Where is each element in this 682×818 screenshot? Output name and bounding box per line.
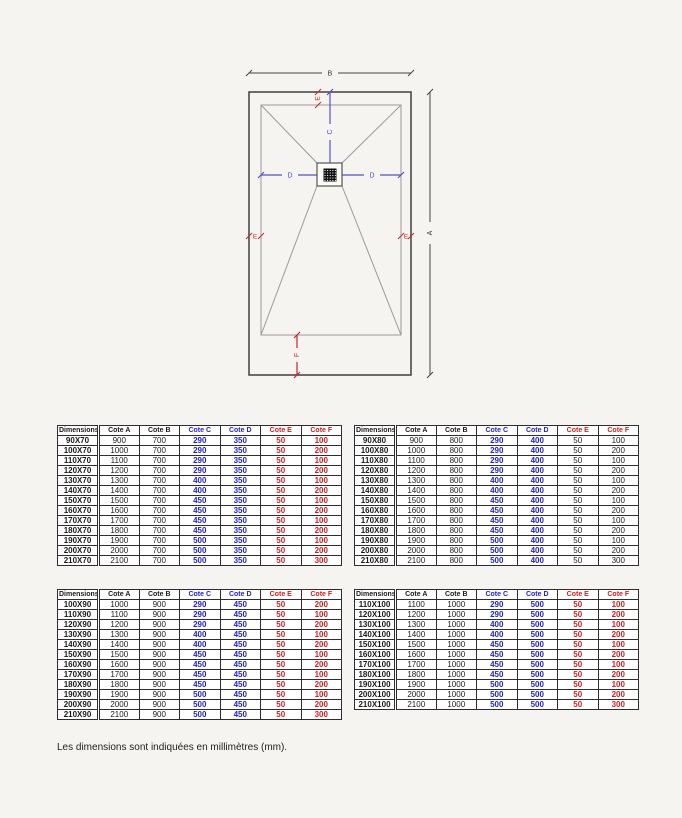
table-cell: 100 <box>598 536 639 546</box>
header-cell: Cote F <box>598 590 639 600</box>
table-row: 170X80170080045040050100 <box>355 516 639 526</box>
table-cell: 180X90 <box>58 680 99 690</box>
dim-label-e-left: E <box>253 234 258 241</box>
table-cell: 900 <box>139 690 180 700</box>
table-cell: 800 <box>436 506 477 516</box>
footer-note: Les dimensions sont indiquées en millimè… <box>57 742 287 753</box>
table-cell: 450 <box>220 710 261 720</box>
header-cell: Cote C <box>477 426 518 436</box>
table-cell: 200 <box>598 486 639 496</box>
table-cell: 100 <box>301 630 342 640</box>
table-cell: 160X70 <box>58 506 99 516</box>
table-cell: 50 <box>558 526 599 536</box>
table-cell: 100 <box>598 516 639 526</box>
table-cell: 150X100 <box>355 640 396 650</box>
dim-label-a: A <box>427 230 434 235</box>
table-cell: 900 <box>139 700 180 710</box>
table-row: 130X90130090040045050100 <box>58 630 342 640</box>
table-cell: 500 <box>517 610 558 620</box>
table-cell: 210X80 <box>355 556 396 566</box>
table-row: 190X80190080050040050100 <box>355 536 639 546</box>
table-cell: 50 <box>558 436 599 446</box>
table-cell: 500 <box>517 650 558 660</box>
table-cell: 450 <box>477 650 518 660</box>
header-cell: Cote D <box>220 590 261 600</box>
table-cell: 170X70 <box>58 516 99 526</box>
header-cell: Cote E <box>558 426 599 436</box>
table-cell: 1000 <box>436 650 477 660</box>
table-cell: 210X90 <box>58 710 99 720</box>
table-cell: 50 <box>558 680 599 690</box>
table-cell: 170X100 <box>355 660 396 670</box>
table-row: 160X90160090045045050200 <box>58 660 342 670</box>
table-cell: 500 <box>517 600 558 610</box>
table-cell: 90X80 <box>355 436 396 446</box>
table-cell: 800 <box>436 486 477 496</box>
dim-label-d-left: D <box>287 173 292 180</box>
table-row: 130X1001300100040050050100 <box>355 620 639 630</box>
table-cell: 50 <box>261 610 302 620</box>
table-cell: 1000 <box>436 700 477 710</box>
table-cell: 500 <box>517 660 558 670</box>
header-cell: Cote B <box>139 590 180 600</box>
table-cell: 700 <box>139 496 180 506</box>
table-cell: 100 <box>598 680 639 690</box>
table-cell: 180X80 <box>355 526 396 536</box>
table-cell: 50 <box>261 690 302 700</box>
table-cell: 1800 <box>396 526 437 536</box>
table-cell: 500 <box>180 546 221 556</box>
table-cell: 200 <box>301 620 342 630</box>
table-row: 120X90120090029045050200 <box>58 620 342 630</box>
table-cell: 1400 <box>99 486 140 496</box>
table-cell: 100 <box>301 516 342 526</box>
table-cell: 500 <box>180 710 221 720</box>
table-cell: 100X90 <box>58 600 99 610</box>
table-cell: 350 <box>220 546 261 556</box>
table-cell: 700 <box>139 506 180 516</box>
table-cell: 300 <box>301 710 342 720</box>
table-cell: 800 <box>436 526 477 536</box>
table-cell: 1600 <box>396 506 437 516</box>
table-cell: 450 <box>477 496 518 506</box>
table-cell: 100 <box>598 640 639 650</box>
dim-label-f: F <box>294 353 301 357</box>
table-cell: 1900 <box>99 536 140 546</box>
table-cell: 290 <box>477 610 518 620</box>
table-cell: 50 <box>558 650 599 660</box>
table-cell: 140X90 <box>58 640 99 650</box>
table-cell: 50 <box>261 710 302 720</box>
table-cell: 2100 <box>99 556 140 566</box>
table-cell: 900 <box>139 630 180 640</box>
table-cell: 900 <box>396 436 437 446</box>
table-cell: 1000 <box>436 620 477 630</box>
table-cell: 50 <box>261 516 302 526</box>
table-cell: 290 <box>477 466 518 476</box>
table-row: 110X1001100100029050050100 <box>355 600 639 610</box>
table-row: 120X80120080029040050200 <box>355 466 639 476</box>
table-cell: 500 <box>517 670 558 680</box>
table-cell: 100X70 <box>58 446 99 456</box>
table-cell: 300 <box>598 556 639 566</box>
table-cell: 500 <box>517 620 558 630</box>
table-cell: 50 <box>558 610 599 620</box>
table-cell: 700 <box>139 556 180 566</box>
table-cell: 50 <box>558 456 599 466</box>
table-cell: 130X80 <box>355 476 396 486</box>
table-cell: 1300 <box>99 630 140 640</box>
table-cell: 200X70 <box>58 546 99 556</box>
table-row: 90X7090070029035050100 <box>58 436 342 446</box>
page: B A C <box>0 0 682 818</box>
table-cell: 450 <box>220 620 261 630</box>
table-cell: 50 <box>261 630 302 640</box>
table-row: 200X90200090050045050200 <box>58 700 342 710</box>
table-cell: 1700 <box>396 516 437 526</box>
table-cell: 800 <box>436 496 477 506</box>
table-cell: 700 <box>139 466 180 476</box>
table-cell: 800 <box>436 436 477 446</box>
table-cell: 1100 <box>99 610 140 620</box>
table-row: 160X80160080045040050200 <box>355 506 639 516</box>
table-cell: 100 <box>301 650 342 660</box>
header-cell: Cote E <box>558 590 599 600</box>
table-cell: 170X80 <box>355 516 396 526</box>
table-cell: 200 <box>301 600 342 610</box>
table-cell: 450 <box>220 660 261 670</box>
dim-label-c: C <box>327 129 334 134</box>
table-cell: 50 <box>261 700 302 710</box>
table-cell: 900 <box>139 620 180 630</box>
header-cell: Cote B <box>139 426 180 436</box>
table-cell: 290 <box>477 446 518 456</box>
table-cell: 50 <box>261 476 302 486</box>
dimensions-table-100: DimensionsCote ACote BCote CCote DCote E… <box>354 589 639 710</box>
header-cell: Cote C <box>180 590 221 600</box>
table-cell: 200 <box>598 506 639 516</box>
table-row: 180X80180080045040050200 <box>355 526 639 536</box>
header-cell: Dimensions <box>355 590 396 600</box>
table-cell: 400 <box>180 486 221 496</box>
table-cell: 50 <box>261 486 302 496</box>
table-cell: 1500 <box>99 650 140 660</box>
table-cell: 180X100 <box>355 670 396 680</box>
table-cell: 500 <box>180 700 221 710</box>
table-cell: 450 <box>220 700 261 710</box>
table-cell: 200 <box>301 526 342 536</box>
table-cell: 400 <box>517 546 558 556</box>
table-cell: 450 <box>180 506 221 516</box>
table-cell: 100 <box>301 670 342 680</box>
table-cell: 450 <box>220 610 261 620</box>
table-cell: 200X90 <box>58 700 99 710</box>
table-cell: 1500 <box>99 496 140 506</box>
table-cell: 100 <box>301 436 342 446</box>
table-cell: 1300 <box>396 620 437 630</box>
dim-label-e-right: E <box>404 234 409 241</box>
table-cell: 200 <box>598 670 639 680</box>
table-cell: 400 <box>180 630 221 640</box>
header-cell: Cote D <box>517 426 558 436</box>
dim-label-b: B <box>328 71 333 78</box>
table-cell: 400 <box>477 486 518 496</box>
table-cell: 350 <box>220 436 261 446</box>
table-cell: 800 <box>436 556 477 566</box>
table-cell: 50 <box>261 600 302 610</box>
header-cell: Cote E <box>261 426 302 436</box>
table-cell: 200 <box>301 466 342 476</box>
table-cell: 1000 <box>396 446 437 456</box>
table-cell: 450 <box>477 526 518 536</box>
table-cell: 2100 <box>99 710 140 720</box>
table-row: 180X70180070045035050200 <box>58 526 342 536</box>
table-row: 190X90190090050045050100 <box>58 690 342 700</box>
table-cell: 200 <box>301 486 342 496</box>
table-cell: 450 <box>180 526 221 536</box>
table-cell: 450 <box>220 680 261 690</box>
table-cell: 160X90 <box>58 660 99 670</box>
table-cell: 350 <box>220 536 261 546</box>
table-cell: 1400 <box>396 630 437 640</box>
table-cell: 1300 <box>99 476 140 486</box>
table-cell: 160X80 <box>355 506 396 516</box>
table-cell: 400 <box>517 536 558 546</box>
table-cell: 400 <box>517 496 558 506</box>
table-cell: 800 <box>436 466 477 476</box>
table-cell: 50 <box>261 680 302 690</box>
table-cell: 400 <box>517 506 558 516</box>
table-cell: 500 <box>477 700 518 710</box>
table-cell: 50 <box>261 670 302 680</box>
dim-label-d-right: D <box>369 173 374 180</box>
table-cell: 450 <box>220 630 261 640</box>
table-row: 170X70170070045035050100 <box>58 516 342 526</box>
table-cell: 400 <box>477 630 518 640</box>
table-cell: 700 <box>139 486 180 496</box>
table-cell: 130X70 <box>58 476 99 486</box>
table-cell: 140X80 <box>355 486 396 496</box>
table-cell: 150X70 <box>58 496 99 506</box>
header-cell: Cote F <box>301 426 342 436</box>
table-cell: 1200 <box>396 466 437 476</box>
table-cell: 120X90 <box>58 620 99 630</box>
table-cell: 450 <box>477 516 518 526</box>
table-cell: 1800 <box>396 670 437 680</box>
table-cell: 350 <box>220 456 261 466</box>
table-cell: 900 <box>139 650 180 660</box>
table-cell: 700 <box>139 526 180 536</box>
table-cell: 90X70 <box>58 436 99 446</box>
table-cell: 1800 <box>99 680 140 690</box>
table-cell: 50 <box>558 670 599 680</box>
table-cell: 100 <box>301 476 342 486</box>
table-cell: 1800 <box>99 526 140 536</box>
table-cell: 290 <box>477 600 518 610</box>
table-cell: 50 <box>261 436 302 446</box>
table-cell: 1500 <box>396 640 437 650</box>
header-cell: Cote A <box>396 426 437 436</box>
table-row: 140X90140090040045050200 <box>58 640 342 650</box>
table-cell: 800 <box>436 546 477 556</box>
header-cell: Dimensions <box>58 590 99 600</box>
table-cell: 350 <box>220 506 261 516</box>
table-row: 200X1002000100050050050200 <box>355 690 639 700</box>
table-cell: 50 <box>261 650 302 660</box>
table-row: 110X90110090029045050100 <box>58 610 342 620</box>
table-cell: 350 <box>220 446 261 456</box>
table-cell: 50 <box>261 546 302 556</box>
table-cell: 50 <box>261 466 302 476</box>
table-cell: 50 <box>558 506 599 516</box>
table-cell: 190X70 <box>58 536 99 546</box>
table-cell: 100 <box>598 496 639 506</box>
table-cell: 50 <box>261 526 302 536</box>
table-cell: 400 <box>517 486 558 496</box>
table-cell: 450 <box>220 690 261 700</box>
table-row: 170X90170090045045050100 <box>58 670 342 680</box>
header-cell: Cote B <box>436 590 477 600</box>
table-cell: 400 <box>477 476 518 486</box>
table-cell: 1000 <box>436 630 477 640</box>
header-cell: Cote C <box>477 590 518 600</box>
table-cell: 50 <box>558 640 599 650</box>
table-cell: 290 <box>180 620 221 630</box>
table-cell: 1000 <box>99 446 140 456</box>
table-cell: 1100 <box>396 456 437 466</box>
table-cell: 290 <box>180 610 221 620</box>
table-cell: 400 <box>517 516 558 526</box>
table-cell: 1400 <box>99 640 140 650</box>
table-cell: 120X70 <box>58 466 99 476</box>
table-cell: 800 <box>436 476 477 486</box>
table-cell: 130X100 <box>355 620 396 630</box>
table-cell: 450 <box>180 680 221 690</box>
tray-inner-rect <box>261 105 401 335</box>
table-cell: 400 <box>517 436 558 446</box>
table-cell: 1400 <box>396 486 437 496</box>
table-cell: 50 <box>261 536 302 546</box>
table-cell: 900 <box>139 640 180 650</box>
table-cell: 1000 <box>99 600 140 610</box>
table-cell: 50 <box>261 640 302 650</box>
table-cell: 300 <box>598 700 639 710</box>
table-row: 110X70110070029035050100 <box>58 456 342 466</box>
table-row: 100X80100080029040050200 <box>355 446 639 456</box>
table-cell: 800 <box>436 536 477 546</box>
table-cell: 2000 <box>99 546 140 556</box>
header-cell: Cote E <box>261 590 302 600</box>
table-row: 210X70210070050035050300 <box>58 556 342 566</box>
table-row: 140X80140080040040050200 <box>355 486 639 496</box>
table-cell: 1100 <box>99 456 140 466</box>
table-cell: 290 <box>180 436 221 446</box>
table-row: 190X70190070050035050100 <box>58 536 342 546</box>
table-row: 100X70100070029035050200 <box>58 446 342 456</box>
table-cell: 50 <box>558 546 599 556</box>
table-cell: 200X100 <box>355 690 396 700</box>
table-cell: 700 <box>139 456 180 466</box>
table-row: 120X70120070029035050200 <box>58 466 342 476</box>
table-cell: 200 <box>598 466 639 476</box>
table-cell: 100X80 <box>355 446 396 456</box>
table-cell: 1200 <box>99 466 140 476</box>
table-row: 210X80210080050040050300 <box>355 556 639 566</box>
table-cell: 500 <box>517 640 558 650</box>
table-cell: 350 <box>220 526 261 536</box>
table-cell: 290 <box>477 436 518 446</box>
table-row: 140X70140070040035050200 <box>58 486 342 496</box>
table-cell: 450 <box>180 650 221 660</box>
table-cell: 1200 <box>99 620 140 630</box>
table-cell: 800 <box>436 446 477 456</box>
table-cell: 500 <box>517 690 558 700</box>
table-cell: 1000 <box>436 680 477 690</box>
table-row: 180X1001800100045050050200 <box>355 670 639 680</box>
table-cell: 200 <box>301 506 342 516</box>
table-cell: 400 <box>517 456 558 466</box>
table-cell: 350 <box>220 466 261 476</box>
table-cell: 100 <box>301 456 342 466</box>
table-cell: 100 <box>598 436 639 446</box>
table-row: 200X70200070050035050200 <box>58 546 342 556</box>
table-cell: 190X90 <box>58 690 99 700</box>
table-cell: 700 <box>139 536 180 546</box>
table-cell: 110X100 <box>355 600 396 610</box>
table-cell: 450 <box>477 660 518 670</box>
table-cell: 500 <box>180 690 221 700</box>
table-cell: 700 <box>139 546 180 556</box>
table-cell: 160X100 <box>355 650 396 660</box>
table-cell: 150X80 <box>355 496 396 506</box>
table-cell: 500 <box>477 690 518 700</box>
table-cell: 1000 <box>436 600 477 610</box>
table-cell: 500 <box>180 556 221 566</box>
table-cell: 1900 <box>396 536 437 546</box>
table-row: 210X90210090050045050300 <box>58 710 342 720</box>
table-cell: 50 <box>261 620 302 630</box>
table-cell: 2100 <box>396 700 437 710</box>
table-cell: 200 <box>598 446 639 456</box>
table-cell: 1900 <box>99 690 140 700</box>
header-cell: Cote A <box>99 426 140 436</box>
table-cell: 1300 <box>396 476 437 486</box>
table-cell: 450 <box>220 650 261 660</box>
table-cell: 200 <box>598 526 639 536</box>
table-cell: 200X80 <box>355 546 396 556</box>
table-cell: 190X100 <box>355 680 396 690</box>
table-cell: 350 <box>220 556 261 566</box>
table-cell: 50 <box>261 556 302 566</box>
table-cell: 450 <box>180 496 221 506</box>
table-cell: 1700 <box>99 516 140 526</box>
table-cell: 100 <box>598 456 639 466</box>
table-cell: 180X70 <box>58 526 99 536</box>
table-cell: 50 <box>261 660 302 670</box>
table-cell: 500 <box>477 546 518 556</box>
table-cell: 100 <box>598 600 639 610</box>
header-row: DimensionsCote ACote BCote CCote DCote E… <box>58 426 342 436</box>
header-cell: Cote D <box>517 590 558 600</box>
table-cell: 50 <box>558 660 599 670</box>
table-row: 150X90150090045045050100 <box>58 650 342 660</box>
table-cell: 50 <box>558 556 599 566</box>
table-cell: 50 <box>261 506 302 516</box>
header-cell: Dimensions <box>58 426 99 436</box>
table-cell: 900 <box>139 670 180 680</box>
table-cell: 2000 <box>396 690 437 700</box>
table-cell: 200 <box>598 630 639 640</box>
